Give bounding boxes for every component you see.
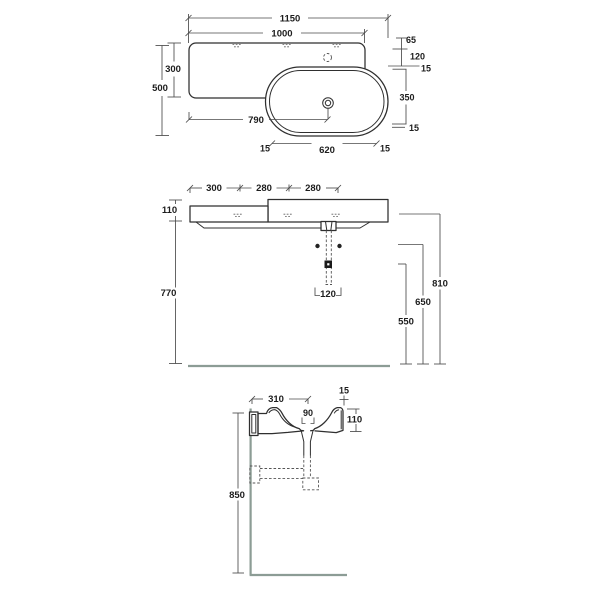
svg-text:15: 15 [339, 386, 349, 396]
front-dim-waste-height: 550 [398, 317, 414, 328]
front-dim-span3: 280 [305, 183, 321, 194]
plan-basin-outer-rim [266, 67, 389, 136]
front-body-left [190, 206, 268, 222]
front-dim-under-height: 770 [161, 288, 177, 299]
side-wall-plate [250, 412, 259, 436]
front-dim-span1: 300 [206, 183, 222, 194]
front-dim-top-height: 810 [432, 279, 448, 290]
svg-text:120: 120 [320, 289, 336, 300]
plan-dim-basin-inner-width: 620 [319, 145, 335, 156]
front-body-right [268, 200, 388, 223]
svg-text:500: 500 [152, 83, 168, 94]
front-dim-basin-height: 110 [162, 205, 177, 216]
front-dim-bracket-height: 650 [415, 297, 431, 308]
plan-dim-rim-right: 15 [380, 144, 390, 154]
svg-text:850: 850 [229, 490, 245, 501]
svg-text:790: 790 [248, 115, 264, 126]
svg-text:90: 90 [303, 408, 313, 418]
plan-dim-tap-to-basin: 120 [410, 52, 425, 62]
svg-text:1000: 1000 [271, 29, 292, 40]
plan-dim-edge-to-tap: 65 [406, 35, 416, 45]
svg-text:1150: 1150 [280, 14, 301, 25]
front-fixing-dot-left [315, 244, 319, 248]
svg-text:310: 310 [268, 394, 284, 405]
svg-text:300: 300 [165, 64, 181, 75]
plan-dim-rim-top: 15 [421, 64, 431, 74]
front-dim-span2: 280 [256, 183, 272, 194]
spec-sheet-page: 1150 1000 300 500 [0, 0, 600, 600]
front-dim-fixing-spans: 300 280 280 [187, 183, 341, 194]
technical-drawing: 1150 1000 300 500 [0, 0, 600, 600]
plan-dim-rim-bottom: 15 [409, 123, 419, 133]
plan-dim-basin-inner-depth: 350 [399, 93, 414, 103]
front-fixing-dot-right [337, 244, 341, 248]
plan-dim-rim-left: 15 [260, 144, 270, 154]
svg-text:110: 110 [347, 415, 362, 426]
